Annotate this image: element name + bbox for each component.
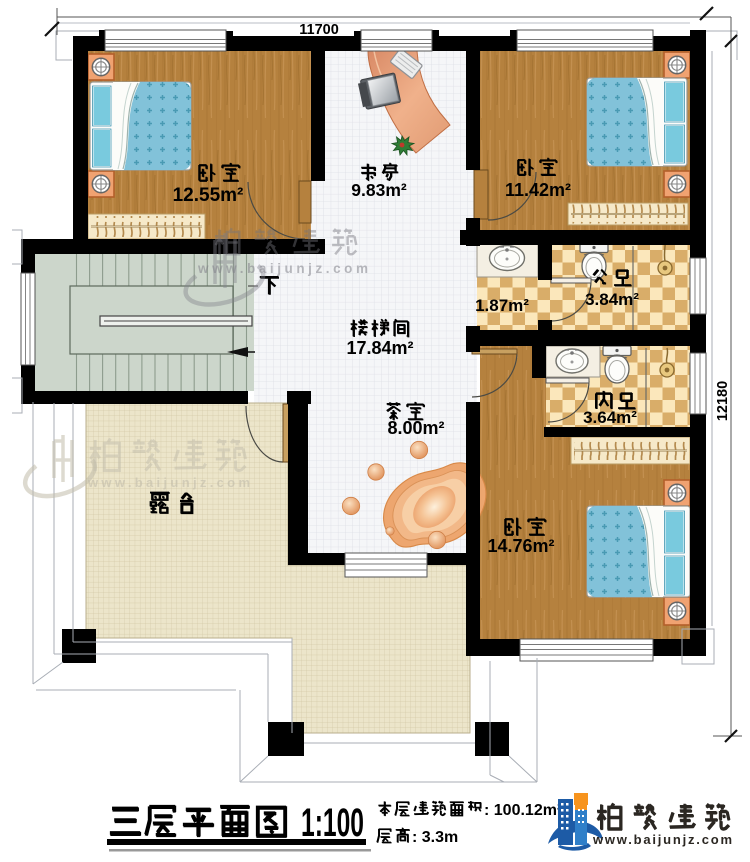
svg-text:12180: 12180: [715, 381, 731, 421]
svg-text:1:100: 1:100: [301, 801, 364, 845]
svg-text:9.83m²: 9.83m²: [351, 180, 407, 200]
svg-text:: 100.12m²: : 100.12m²: [484, 802, 562, 819]
svg-text:: 3.3m: : 3.3m: [412, 829, 458, 846]
svg-text:1.87m²: 1.87m²: [475, 296, 529, 315]
svg-text:8.00m²: 8.00m²: [387, 418, 444, 438]
svg-text:14.76m²: 14.76m²: [487, 536, 554, 556]
svg-text:11700: 11700: [299, 22, 339, 38]
svg-text:12.55m²: 12.55m²: [173, 185, 244, 206]
svg-text:www.baijunjz.com: www.baijunjz.com: [592, 832, 732, 847]
svg-text:3.64m²: 3.64m²: [583, 408, 637, 427]
svg-text:3.84m²: 3.84m²: [585, 290, 639, 309]
svg-text:11.42m²: 11.42m²: [505, 180, 571, 200]
svg-text:17.84m²: 17.84m²: [346, 338, 413, 358]
